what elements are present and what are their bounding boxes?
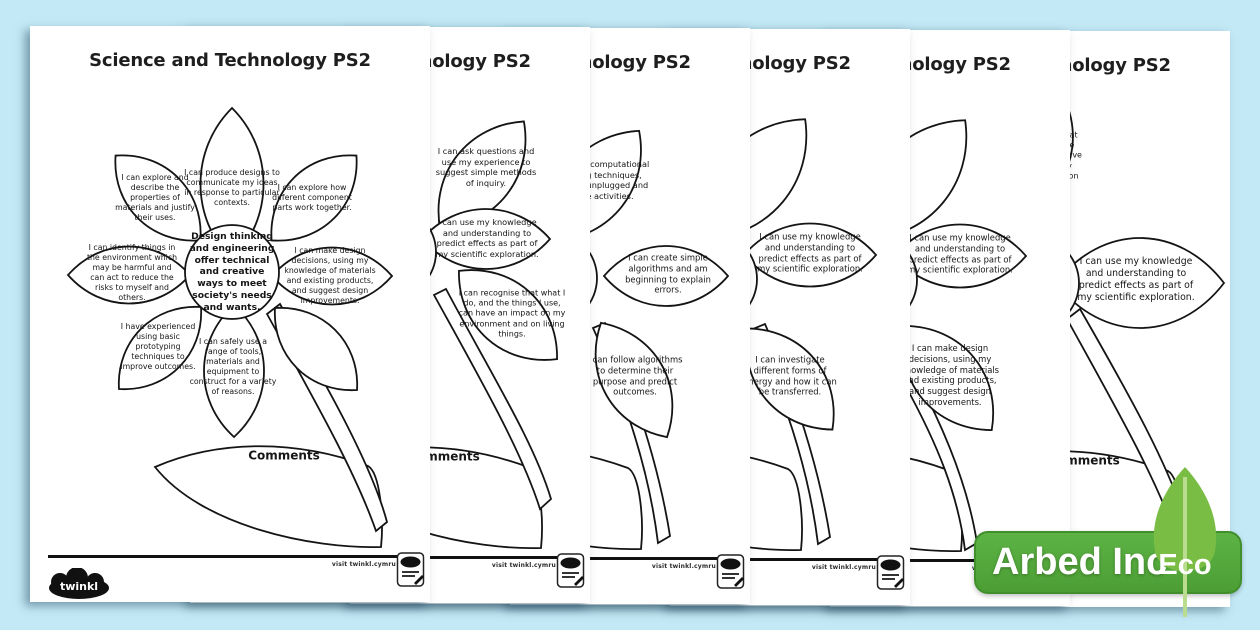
comments-label: Comments bbox=[244, 448, 324, 463]
worksheet-page: Science and Technology PS2 I can produce… bbox=[30, 26, 430, 602]
twinkl-logo-text: twinkl bbox=[60, 580, 98, 593]
twinkl-quality-badge-icon bbox=[716, 552, 746, 592]
petal-statement: I can safely use a range of tools, mater… bbox=[188, 337, 278, 397]
twinkl-logo: twinkl bbox=[46, 568, 114, 602]
petal-statement: I can recognise that what I do, and the … bbox=[456, 288, 568, 339]
petal-statement: I can explore how different component pa… bbox=[268, 183, 356, 213]
petal-statement: I can use my knowledge and understanding… bbox=[430, 217, 544, 259]
petal-statement: I can use my knowledge and understanding… bbox=[904, 233, 1016, 276]
petal-statement: I can ask questions and use my experienc… bbox=[432, 146, 540, 188]
petal-statement: I can use my knowledge and understanding… bbox=[1074, 256, 1198, 304]
eco-label: Eco bbox=[1158, 549, 1211, 581]
petal-statement: I can identify things in the environment… bbox=[85, 243, 179, 303]
petal-statement: I can make design decisions, using my kn… bbox=[896, 343, 1004, 408]
preview-stage: Science and Technology PS2 I can produce… bbox=[0, 0, 1260, 630]
footer-divider bbox=[48, 555, 424, 558]
visit-url-text: visit twinkl.cymru bbox=[812, 564, 876, 571]
petal-statement: I can follow algorithms to determine the… bbox=[586, 355, 684, 398]
twinkl-quality-badge-icon bbox=[876, 553, 906, 593]
petal-statement: I can investigate different forms of ene… bbox=[738, 355, 842, 398]
petal-statement: I can explore and describe the propertie… bbox=[113, 173, 197, 223]
twinkl-quality-badge-icon bbox=[396, 550, 426, 590]
visit-url-text: visit twinkl.cymru bbox=[332, 561, 396, 568]
flower-center-statement: Design thinking and engineering offer te… bbox=[186, 231, 278, 313]
petal-statement: I can produce designs to communicate my … bbox=[184, 168, 280, 208]
visit-url-text: visit twinkl.cymru bbox=[652, 563, 716, 570]
flower-diagram bbox=[30, 26, 430, 602]
eco-leaf-icon: Eco bbox=[1139, 462, 1231, 625]
petal-statement: I can create simple algorithms and am be… bbox=[613, 253, 723, 296]
visit-url-text: visit twinkl.cymru bbox=[492, 562, 556, 569]
petal-statement: I can make design decisions, using my kn… bbox=[284, 246, 376, 306]
petal-statement: I can use my knowledge and understanding… bbox=[752, 232, 868, 275]
twinkl-quality-badge-icon bbox=[556, 551, 586, 591]
